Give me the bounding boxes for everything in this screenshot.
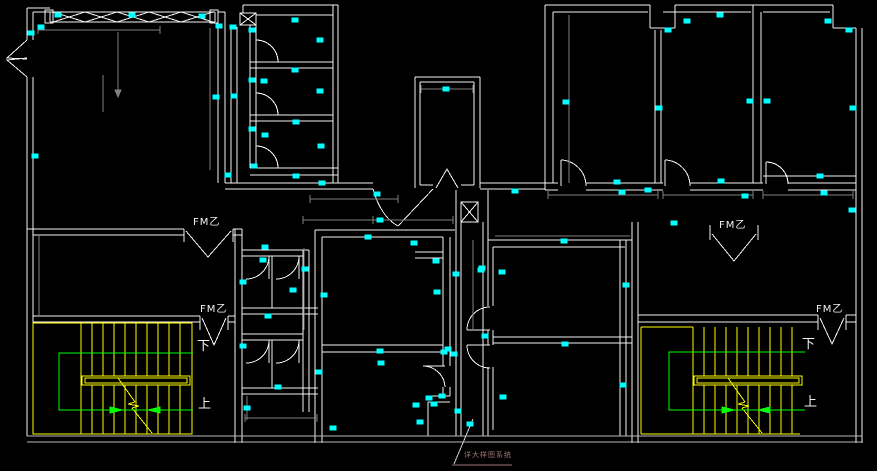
grip-marker[interactable] (482, 334, 489, 339)
floor-plan-drawing (0, 0, 877, 471)
grip-marker[interactable] (249, 28, 256, 33)
grip-marker[interactable] (500, 395, 507, 400)
grip-marker[interactable] (821, 191, 828, 196)
grip-marker[interactable] (561, 239, 568, 244)
grip-marker[interactable] (28, 31, 35, 36)
grip-marker[interactable] (849, 208, 856, 213)
grip-marker[interactable] (850, 106, 857, 111)
stair-left (33, 323, 193, 434)
grip-marker[interactable] (292, 18, 299, 23)
entrance-door-symbol (7, 40, 27, 77)
grip-marker[interactable] (365, 235, 372, 240)
grip-marker[interactable] (671, 221, 678, 226)
grip-marker[interactable] (261, 79, 268, 84)
grip-marker[interactable] (231, 94, 238, 99)
grip-marker[interactable] (656, 106, 663, 111)
grip-marker[interactable] (38, 25, 45, 30)
grip-marker[interactable] (265, 314, 272, 319)
stair-direction-label-down: 下 (197, 340, 210, 353)
grip-marker[interactable] (292, 68, 299, 73)
grip-marker[interactable] (451, 352, 458, 357)
fire-door-symbol (184, 229, 233, 257)
grip-marker[interactable] (249, 127, 256, 132)
grip-marker[interactable] (817, 174, 824, 179)
grip-marker[interactable] (318, 144, 325, 149)
grip-marker[interactable] (293, 174, 300, 179)
grip-marker[interactable] (467, 422, 474, 427)
stair-direction-label-up: 上 (198, 398, 211, 411)
grip-marker[interactable] (262, 133, 269, 138)
outer-bottom-wall (27, 436, 862, 442)
grip-marker[interactable] (718, 179, 725, 184)
grip-marker[interactable] (747, 99, 754, 104)
dimension-lines (38, 15, 853, 422)
stair-right (641, 327, 805, 434)
grip-marker[interactable] (443, 87, 450, 92)
grip-marker[interactable] (512, 189, 519, 194)
grip-marker[interactable] (251, 164, 258, 169)
grip-marker[interactable] (620, 383, 627, 388)
grip-marker[interactable] (317, 38, 324, 43)
grip-marker[interactable] (439, 394, 446, 399)
grip-marker[interactable] (433, 259, 440, 264)
grip-marker[interactable] (260, 258, 267, 263)
grip-marker[interactable] (302, 267, 309, 272)
grip-marker[interactable] (319, 181, 326, 186)
grip-marker[interactable] (614, 180, 621, 185)
grip-marker[interactable] (619, 190, 626, 195)
fire-door-label: FM乙 (816, 305, 843, 315)
grip-marker[interactable] (293, 120, 300, 125)
grip-marker[interactable] (645, 188, 652, 193)
grip-marker[interactable] (129, 13, 136, 18)
grip-marker[interactable] (230, 25, 237, 30)
grip-marker[interactable] (213, 95, 220, 100)
stair-direction-label-up: 上 (804, 396, 817, 409)
grip-marker[interactable] (240, 280, 247, 285)
grip-marker[interactable] (431, 402, 438, 407)
grip-marker[interactable] (455, 409, 462, 414)
grip-marker[interactable] (32, 154, 39, 159)
grip-marker[interactable] (216, 24, 223, 29)
grip-marker[interactable] (374, 192, 381, 197)
grip-marker[interactable] (764, 99, 771, 104)
grip-marker[interactable] (562, 342, 569, 347)
grip-marker[interactable] (321, 293, 328, 298)
grip-marker[interactable] (240, 344, 247, 349)
grip-marker[interactable] (623, 283, 630, 288)
grip-marker[interactable] (453, 272, 460, 277)
grip-marker[interactable] (330, 426, 337, 431)
grip-marker[interactable] (378, 361, 385, 366)
grip-marker[interactable] (317, 89, 324, 94)
grip-marker[interactable] (249, 78, 256, 83)
grip-marker[interactable] (244, 406, 251, 411)
grip-marker[interactable] (55, 13, 62, 18)
grip-marker[interactable] (413, 403, 420, 408)
grip-marker[interactable] (434, 290, 441, 295)
grip-marker[interactable] (479, 266, 486, 271)
elevator-door-symbol (436, 169, 458, 188)
grip-marker[interactable] (426, 396, 433, 401)
grip-marker[interactable] (825, 19, 832, 24)
fire-door-symbol (818, 315, 846, 344)
grip-marker[interactable] (665, 28, 672, 33)
grip-marker[interactable] (846, 28, 853, 33)
doors (7, 40, 846, 387)
fire-door-label: FM乙 (719, 221, 746, 231)
grip-marker[interactable] (717, 13, 724, 18)
grip-marker[interactable] (316, 370, 323, 375)
grip-marker[interactable] (684, 19, 691, 24)
grip-marker[interactable] (262, 245, 269, 250)
fire-door-label: FM乙 (193, 218, 220, 228)
grip-marker[interactable] (275, 385, 282, 390)
window-hatch (45, 10, 478, 222)
grip-marker[interactable] (441, 350, 448, 355)
grip-marker[interactable] (290, 288, 297, 293)
grip-marker[interactable] (417, 420, 424, 425)
stair-direction-label-down: 下 (802, 338, 815, 351)
fire-door-label: FM乙 (200, 305, 227, 315)
grip-marker[interactable] (199, 14, 206, 19)
grip-marker[interactable] (563, 100, 570, 105)
grip-marker[interactable] (377, 349, 384, 354)
grip-marker[interactable] (411, 241, 418, 246)
grip-marker[interactable] (225, 173, 232, 178)
grip-marker[interactable] (377, 218, 384, 223)
grip-marker[interactable] (742, 194, 749, 199)
grip-marker[interactable] (499, 270, 506, 275)
detail-annotation-label: 详大样图系统 (464, 452, 512, 459)
cad-drawing-canvas[interactable]: FM乙 FM乙 FM乙 FM乙 下 上 下 上 详大样图系统 (0, 0, 877, 471)
